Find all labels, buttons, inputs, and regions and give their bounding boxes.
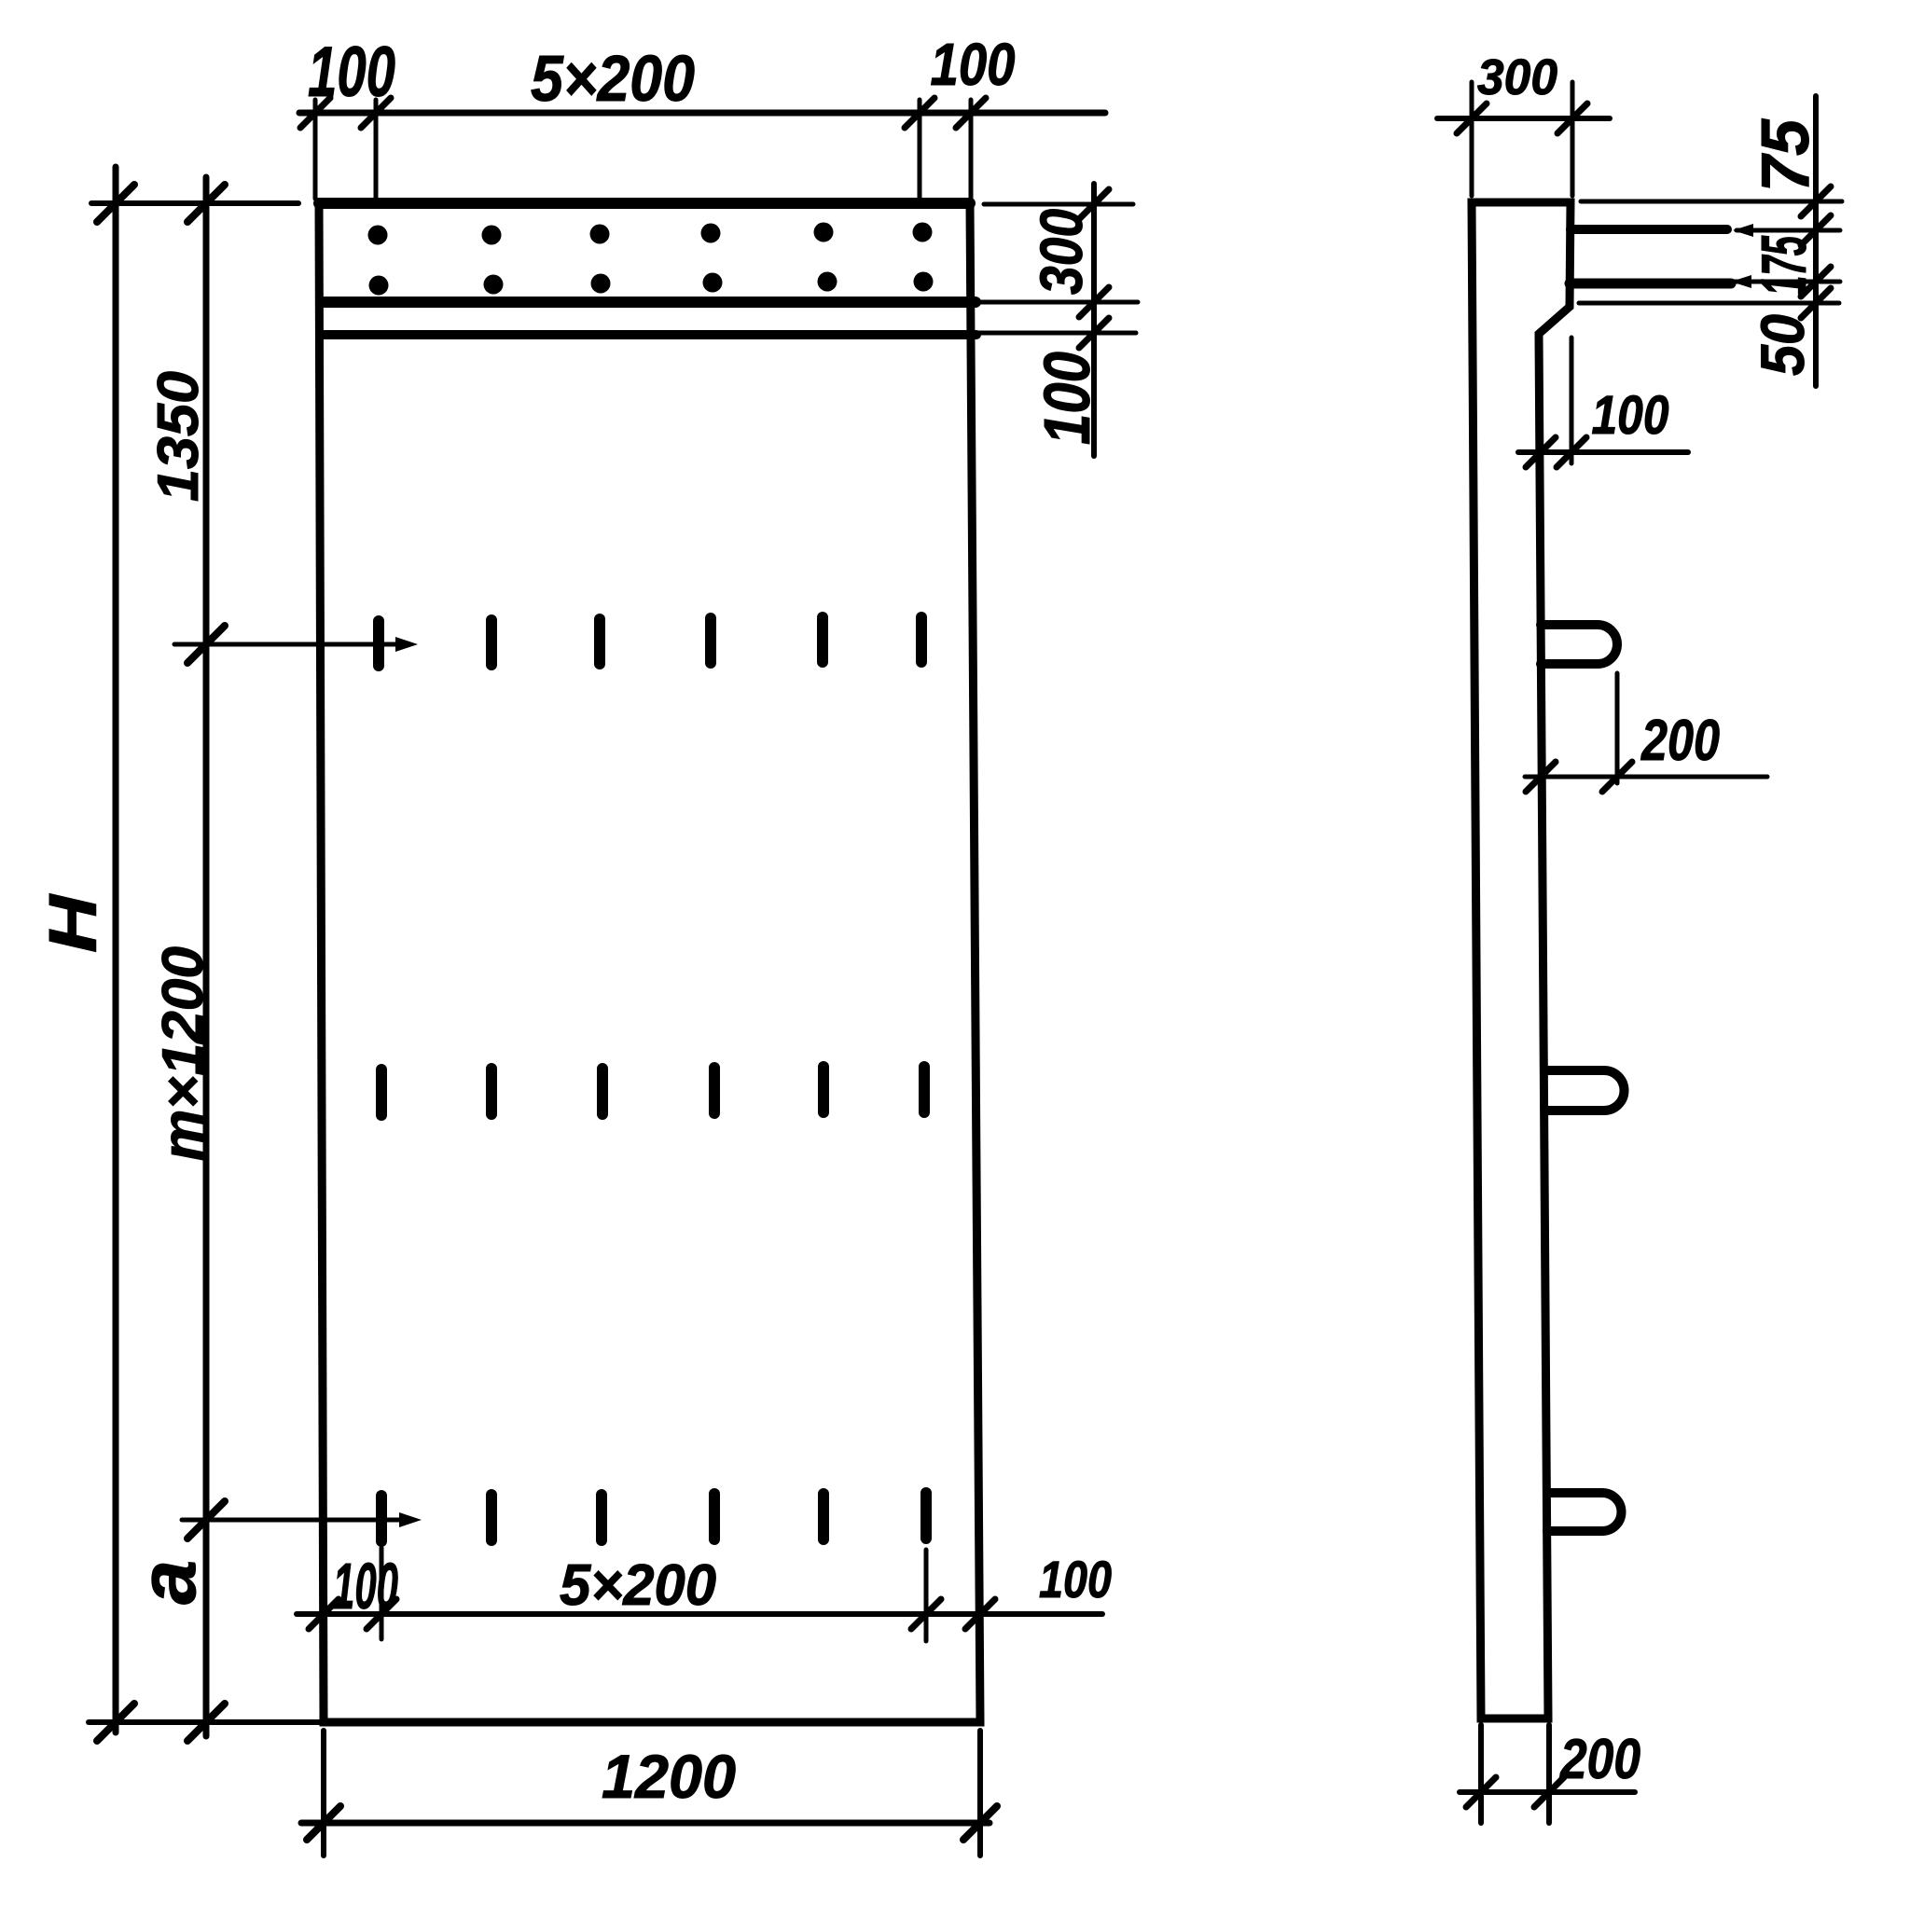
svg-text:5×200: 5×200 [531,42,695,115]
svg-text:100: 100 [333,1550,398,1622]
svg-text:100: 100 [1031,352,1103,445]
svg-text:300: 300 [1028,209,1095,295]
svg-text:100: 100 [931,31,1016,98]
svg-text:a: a [123,1560,213,1605]
svg-text:50: 50 [1748,314,1817,376]
svg-text:5×200: 5×200 [560,1553,716,1618]
svg-text:1350: 1350 [146,371,211,502]
svg-text:100: 100 [1592,385,1669,446]
svg-text:100: 100 [1039,1550,1112,1608]
svg-text:200: 200 [1640,709,1720,773]
svg-text:1200: 1200 [602,1742,736,1811]
svg-text:100: 100 [308,33,395,112]
svg-text:75: 75 [1749,118,1823,192]
svg-text:200: 200 [1559,1728,1640,1790]
svg-text:m×1200: m×1200 [151,946,215,1161]
svg-text:300: 300 [1477,49,1557,105]
svg-text:H: H [36,893,111,953]
svg-text:175: 175 [1749,235,1820,296]
